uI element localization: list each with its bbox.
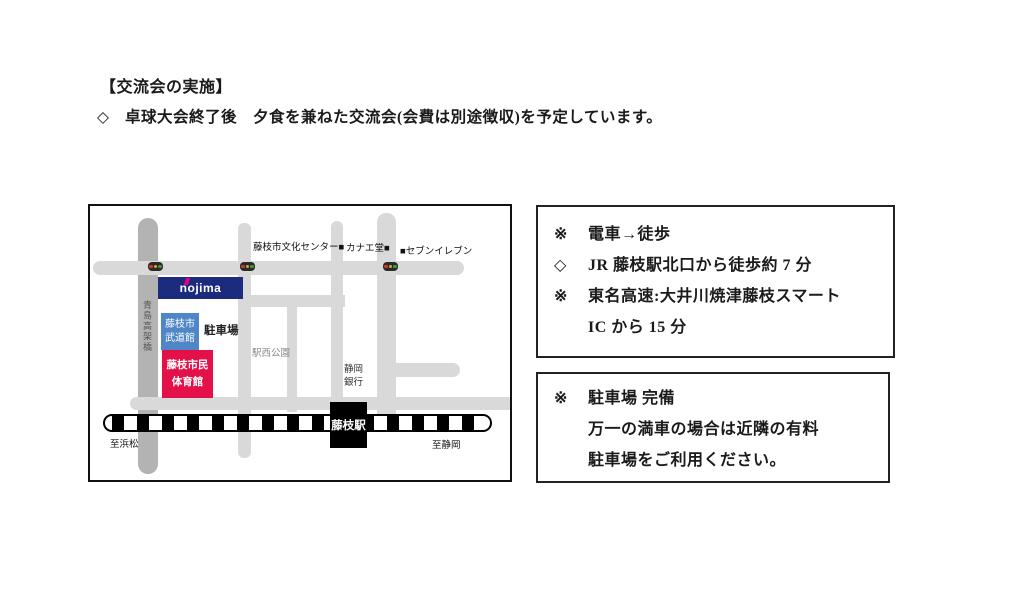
parking-text: 駐車場 完備 (588, 390, 675, 407)
bank-label-line2: 銀行 (344, 377, 363, 388)
railside-road (130, 397, 512, 410)
parking-line: 万一の満車の場合は近隣の有料 (554, 414, 888, 445)
traffic-light-icon (240, 262, 255, 271)
access-map: nojima 藤枝市 武道館 藤枝市民 体育館 藤枝駅 藤枝市文化センター■ カ… (88, 204, 512, 482)
line-marker: ※ (554, 281, 588, 312)
budokan-label-line2: 武道館 (165, 332, 195, 346)
line-marker: ◇ (554, 250, 588, 281)
access-text: IC から 15 分 (588, 319, 687, 336)
aojima-bridge-label: 青島高架橋 (141, 300, 154, 430)
gym-label-line1: 藤枝市民 (167, 357, 209, 374)
traffic-light-icon (148, 262, 163, 271)
parking-text: 駐車場をご利用ください。 (588, 452, 786, 469)
line-marker: ※ (554, 383, 588, 414)
gymnasium-building: 藤枝市民 体育館 (162, 350, 213, 398)
bank-label-line1: 静岡 (344, 364, 363, 375)
budokan-building: 藤枝市 武道館 (161, 313, 199, 350)
east-stub-road (390, 363, 460, 377)
kanaedo-label: カナエ堂■ (346, 240, 390, 254)
railway-line (103, 414, 492, 432)
access-text: 東名高速:大井川焼津藤枝スマート (588, 288, 841, 305)
intro-text: 卓球大会終了後 夕食を兼ねた交流会(会費は別途徴収)を予定しています。 (125, 109, 662, 126)
access-text: 電車→徒歩 (588, 226, 671, 243)
fujieda-station: 藤枝駅 (330, 402, 367, 448)
parking-line: ※駐車場 完備 (554, 383, 888, 414)
access-info-box: ※電車→徒歩 ◇JR 藤枝駅北口から徒歩約 7 分 ※東名高速:大井川焼津藤枝ス… (536, 205, 895, 358)
document-page: 【交流会の実施】 ◇卓球大会終了後 夕食を兼ねた交流会(会費は別途徴収)を予定し… (0, 0, 1024, 605)
budokan-label-line1: 藤枝市 (165, 318, 195, 332)
railway-ties (112, 416, 483, 430)
seven-eleven-label: ■セブンイレブン (400, 243, 472, 257)
to-shizuoka-label: 至静岡 (432, 437, 461, 451)
intro-line: ◇卓球大会終了後 夕食を兼ねた交流会(会費は別途徴収)を予定しています。 (97, 105, 662, 127)
parking-lot-label: 駐車場 (204, 322, 239, 338)
section-heading: 【交流会の実施】 (100, 73, 232, 97)
traffic-light-icon (383, 262, 398, 271)
access-text: JR 藤枝駅北口から徒歩約 7 分 (588, 257, 812, 274)
station-label: 藤枝駅 (331, 417, 366, 433)
gym-label-line2: 体育館 (172, 374, 204, 391)
access-line: ◇JR 藤枝駅北口から徒歩約 7 分 (554, 250, 893, 281)
culture-center-label: 藤枝市文化センター■ (253, 239, 344, 253)
parking-line: 駐車場をご利用ください。 (554, 445, 888, 476)
to-hamamatsu-label: 至浜松 (110, 436, 139, 450)
parking-text: 万一の満車の場合は近隣の有料 (588, 421, 819, 438)
nojima-store: nojima (158, 277, 243, 299)
line-marker: ※ (554, 219, 588, 250)
shizuoka-bank-label: 静岡 銀行 (344, 364, 366, 389)
access-line: IC から 15 分 (554, 312, 893, 343)
parking-info-box: ※駐車場 完備 万一の満車の場合は近隣の有料 駐車場をご利用ください。 (536, 372, 890, 483)
station-west-park-label: 駅西公園 (252, 345, 290, 359)
access-line: ※東名高速:大井川焼津藤枝スマート (554, 281, 893, 312)
access-line: ※電車→徒歩 (554, 219, 893, 250)
diamond-marker: ◇ (97, 107, 125, 127)
